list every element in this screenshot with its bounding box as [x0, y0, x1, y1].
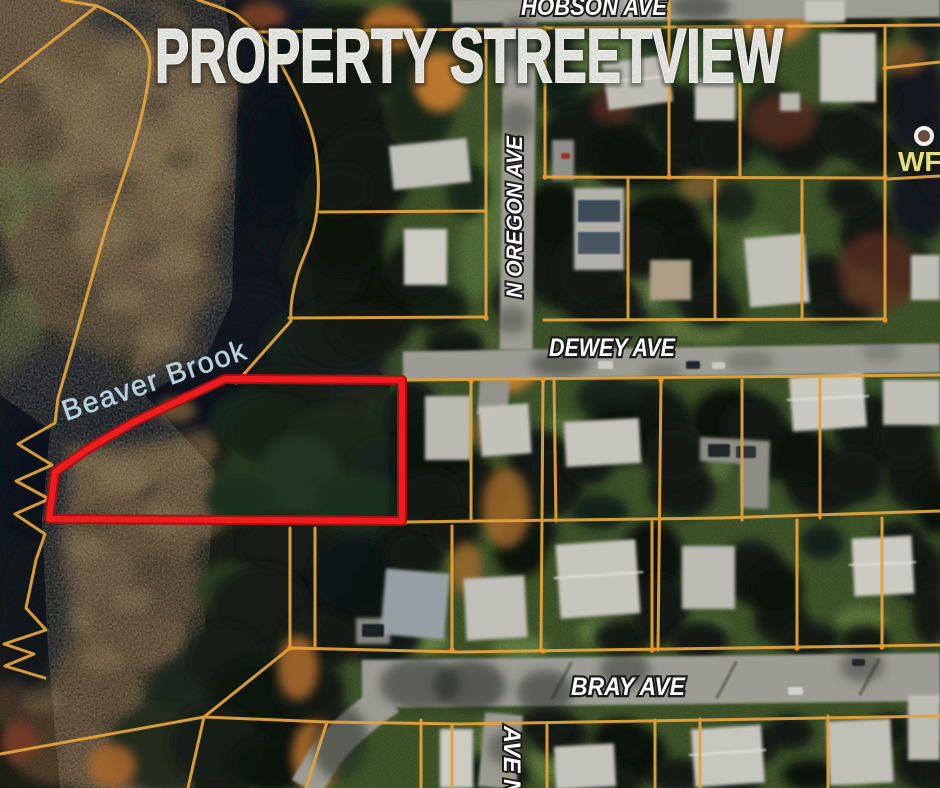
svg-text:WFI: WFI: [898, 146, 940, 177]
svg-text:N OREGON AVE: N OREGON AVE: [502, 135, 527, 298]
svg-text:BRAY AVE: BRAY AVE: [571, 673, 686, 701]
svg-text:PROPERTY STREETVIEW: PROPERTY STREETVIEW: [155, 14, 783, 99]
svg-text:DEWEY AVE: DEWEY AVE: [549, 334, 676, 362]
svg-text:AVE N: AVE N: [498, 725, 525, 788]
